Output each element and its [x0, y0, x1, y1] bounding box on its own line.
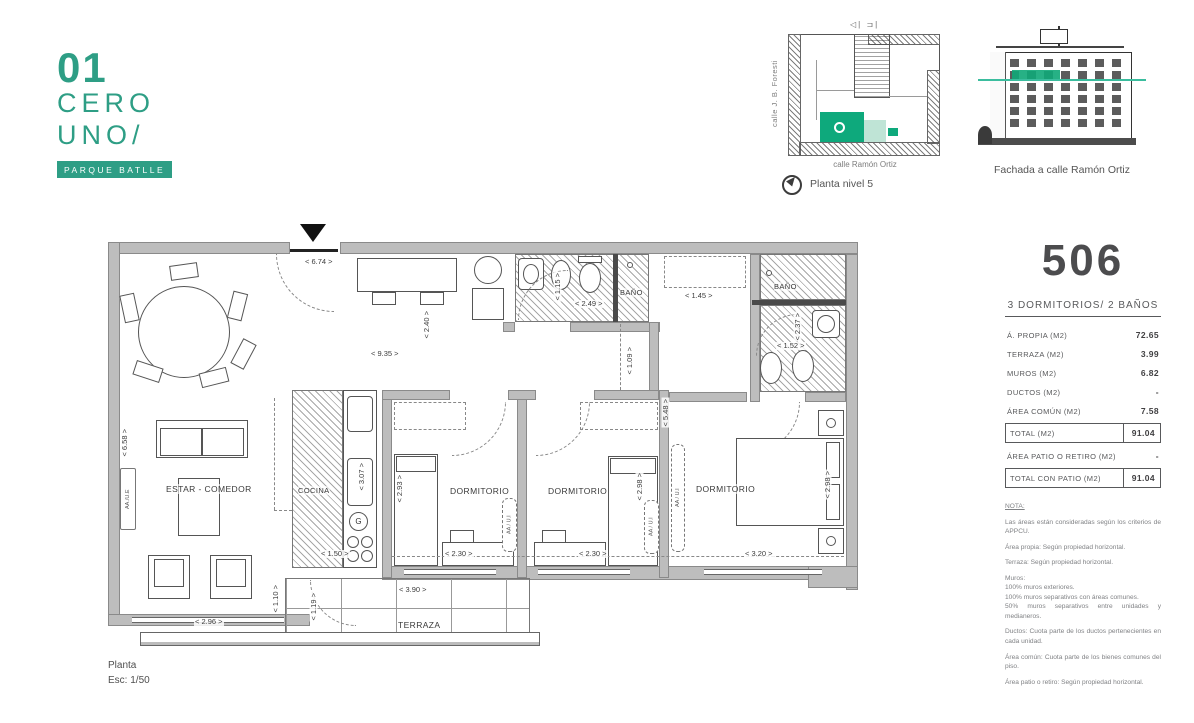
table-row: ÁREA COMÚN (M2)7.58: [1005, 401, 1161, 420]
bathroom-sink-basin: [817, 315, 835, 333]
site-unit-bit: [888, 128, 898, 136]
section-marker-icons: ◁| ⊐|: [850, 20, 879, 29]
facade-rooftop-box: [1040, 29, 1068, 44]
table-row: DUCTOS (M2)-: [1005, 382, 1161, 401]
floor-plan: G AA./U.E AA / U.I AA / U.I AA: [108, 228, 858, 652]
closet: [580, 402, 658, 430]
table-row: MUROS (M2)6.82: [1005, 363, 1161, 382]
note-paragraph: Área propia: Según propiedad horizontal.: [1005, 543, 1161, 553]
window: [704, 569, 822, 575]
ac-interior-unit: AA / U.I: [502, 498, 517, 552]
wall-segment: [669, 392, 747, 402]
room-label-living: ESTAR - COMEDOR: [166, 484, 252, 494]
dimension: < 5.48 >: [662, 398, 670, 428]
dining-chair: [119, 293, 139, 324]
brand-logo: 01 CERO UNO/ PARQUE BATLLE: [57, 48, 172, 178]
brand-tagline: PARQUE BATLLE: [57, 161, 172, 178]
facade-tree: [978, 126, 992, 144]
toilet: [760, 352, 782, 384]
wall-segment: [846, 254, 858, 590]
room-label-bath: BAÑO: [620, 288, 643, 297]
north-compass-icon: [782, 175, 802, 195]
site-plan-caption: Planta nivel 5: [810, 178, 873, 190]
brand-word-cero: CERO: [57, 88, 172, 120]
row-label: MUROS (M2): [1007, 369, 1056, 378]
row-label: ÁREA PATIO O RETIRO (M2): [1007, 452, 1116, 461]
site-hatch-left: [788, 34, 801, 156]
table-row: TERRAZA (M2)3.99: [1005, 344, 1161, 363]
dimension: < 2.40 >: [423, 310, 431, 340]
bedroom1-door-swing: [452, 402, 506, 456]
facade-window-row: [1010, 95, 1126, 103]
ac-interior-unit: AA / U.I: [671, 444, 685, 552]
areas-table: Á. PROPIA (M2)72.65 TERRAZA (M2)3.99 MUR…: [1005, 325, 1161, 488]
projection-line: [274, 398, 275, 510]
unit-subtitle: 3 DORMITORIOS/ 2 BAÑOS: [1005, 300, 1161, 317]
row-value: 7.58: [1141, 406, 1159, 416]
window: [538, 569, 630, 575]
plan-scale: Esc: 1/50: [108, 673, 150, 688]
wall-segment: [508, 390, 536, 400]
dimension: < 2.37 >: [794, 312, 802, 342]
unit-info-panel: 506 3 DORMITORIOS/ 2 BAÑOS Á. PROPIA (M2…: [1005, 236, 1161, 693]
facade-caption: Fachada a calle Ramón Ortiz: [978, 164, 1146, 176]
dimension: < 1.15 >: [554, 272, 562, 302]
site-hatch-bottom: [799, 142, 940, 156]
table-row-total-patio: TOTAL CON PATIO (M2)91.04: [1005, 468, 1161, 488]
note-paragraph: Área patio o retiro: Según propiedad hor…: [1005, 678, 1161, 688]
facade-window-row: [1010, 59, 1126, 67]
wall-segment: [517, 390, 527, 578]
wall-segment: [649, 322, 659, 400]
dimension: < 3.07 >: [358, 462, 366, 492]
unit-number: 506: [1005, 236, 1161, 286]
room-label-bath: BAÑO: [774, 282, 797, 291]
note-paragraph: Terraza: Según propiedad horizontal.: [1005, 558, 1161, 568]
entry-door-leaf: [290, 249, 338, 252]
armchair-cushion: [216, 559, 246, 587]
wall-segment: [108, 242, 120, 626]
lamp: [826, 536, 836, 546]
toilet-tank: [578, 256, 602, 263]
room-label-bedroom: DORMITORIO: [548, 486, 607, 496]
row-value: 91.04: [1123, 469, 1160, 487]
pillow: [610, 458, 656, 474]
stool: [372, 292, 396, 305]
wall-segment: [382, 390, 450, 400]
plan-title: Planta: [108, 658, 150, 673]
pillow: [396, 456, 436, 472]
dimension: < 1.45 >: [684, 292, 714, 300]
facade-roofline: [996, 46, 1124, 48]
row-value: 91.04: [1123, 424, 1160, 442]
row-value: 3.99: [1141, 349, 1159, 359]
row-label: Á. PROPIA (M2): [1007, 331, 1067, 340]
stove-burner: [361, 550, 373, 562]
wall-segment: [108, 242, 290, 254]
site-wall-line: [888, 96, 927, 97]
note-paragraph: Área común: Cuota parte de los bienes co…: [1005, 653, 1161, 672]
dimension: < 1.10 >: [272, 584, 280, 614]
row-value: 6.82: [1141, 368, 1159, 378]
room-label-bedroom: DORMITORIO: [450, 486, 509, 496]
room-label-bedroom: DORMITORIO: [696, 484, 755, 494]
ac-exterior-unit: AA./U.E: [120, 468, 136, 530]
facade-left-pier: [990, 52, 1006, 138]
dimension: < 6.74 >: [304, 258, 334, 266]
row-value: 72.65: [1136, 330, 1159, 340]
wall-segment: [750, 254, 760, 402]
dimension: < 1.50 >: [320, 550, 350, 558]
facade-window-row: [1010, 107, 1126, 115]
brand-word-uno: UNO/: [57, 120, 172, 152]
wall-segment: [805, 392, 846, 402]
stove-burner: [361, 536, 373, 548]
site-elevator-core: [854, 34, 890, 98]
dimension: < 1.52 >: [776, 342, 806, 350]
dimension: < 2.30 >: [444, 550, 474, 558]
toilet: [579, 263, 601, 293]
brand-number: 01: [57, 48, 172, 88]
shower-head: [627, 262, 633, 268]
bathroom2-shower-hatch: [760, 254, 846, 300]
sofa-cushion: [160, 428, 202, 456]
row-label: TOTAL (M2): [1006, 425, 1059, 442]
facade-elevation: Fachada a calle Ramón Ortiz: [978, 26, 1146, 186]
kitchen-sink: [347, 396, 373, 432]
hall-closet: [664, 256, 746, 288]
dimension: < 6.58 >: [121, 428, 129, 458]
dining-chair: [169, 262, 199, 281]
note-paragraph: Ductos: Cuota parte de los ductos perten…: [1005, 627, 1161, 646]
armchair-cushion: [154, 559, 184, 587]
corridor-line: [620, 324, 621, 390]
desk-chair: [450, 530, 474, 543]
dimension: < 3.90 >: [398, 586, 428, 594]
site-hatch-right: [927, 70, 940, 144]
dimension: < 2.96 >: [194, 618, 224, 626]
gas-meter: G: [349, 512, 368, 531]
terrace-railing: [140, 632, 540, 646]
projection-line: [274, 510, 292, 511]
note-paragraph: Muros: 100% muros exteriores. 100% muros…: [1005, 574, 1161, 622]
dimension: < 1.19 >: [310, 592, 318, 622]
wall-segment: [594, 390, 659, 400]
dimension: < 2.93 >: [396, 474, 404, 504]
site-unit-marker-icon: [834, 122, 845, 133]
dimension: < 1.09 >: [626, 346, 634, 376]
shower-drain: [766, 270, 772, 276]
table-row: Á. PROPIA (M2)72.65: [1005, 325, 1161, 344]
stool: [420, 292, 444, 305]
dimension: < 2.30 >: [578, 550, 608, 558]
entry-arrow-icon: [300, 224, 326, 242]
stove-burner: [347, 536, 359, 548]
row-label: TERRAZA (M2): [1007, 350, 1064, 359]
facade-ground: [978, 138, 1136, 145]
wall-segment: [382, 390, 392, 578]
site-plan: ◁| ⊐| calle J. B. Foresti calle Ramón Or…: [770, 20, 975, 210]
bathroom2-divider: [752, 300, 846, 305]
note-paragraph: Las áreas están consideradas según los c…: [1005, 518, 1161, 537]
room-label-kitchen: COCINA: [298, 486, 330, 495]
desk-chair: [542, 530, 566, 543]
site-wall-line: [816, 90, 854, 91]
facade-level-line: [978, 79, 1146, 81]
lamp: [826, 418, 836, 428]
sofa-cushion: [202, 428, 244, 456]
row-label: DUCTOS (M2): [1007, 388, 1060, 397]
row-value: -: [1156, 387, 1159, 397]
kitchen-island: [357, 258, 457, 292]
wall-segment: [340, 242, 858, 254]
room-label-terrace: TERRAZA: [398, 620, 440, 630]
dimension: < 2.98 >: [824, 470, 832, 500]
street-label-bottom: calle Ramón Ortiz: [800, 160, 930, 169]
ac-interior-unit: AA / U.I: [644, 500, 659, 554]
notes-title: NOTA:: [1005, 502, 1161, 512]
kitchen-floor-hatch: [292, 390, 343, 568]
table-row-total: TOTAL (M2)91.04: [1005, 423, 1161, 443]
wall-segment: [503, 322, 515, 332]
bathroom1-divider: [613, 254, 618, 322]
row-label: ÁREA COMÚN (M2): [1007, 407, 1081, 416]
dimension: < 9.35 >: [370, 350, 400, 358]
washing-machine: [474, 256, 502, 284]
dimension: < 2.98 >: [636, 472, 644, 502]
facade-window-row: [1010, 119, 1126, 127]
row-label: TOTAL CON PATIO (M2): [1006, 470, 1105, 487]
notes-block: NOTA: Las áreas están consideradas según…: [1005, 502, 1161, 687]
dining-chair: [227, 291, 248, 322]
row-value: -: [1156, 451, 1159, 461]
dining-chair: [230, 338, 256, 370]
facade-window-row: [1010, 83, 1126, 91]
laundry-cabinet: [472, 288, 504, 320]
table-row: ÁREA PATIO O RETIRO (M2)-: [1005, 446, 1161, 465]
dimension: < 3.20 >: [744, 550, 774, 558]
dimension: < 2.49 >: [574, 300, 604, 308]
window: [404, 569, 496, 575]
site-unit-terrace: [864, 120, 886, 142]
wall-segment: [570, 322, 660, 332]
plan-caption: Planta Esc: 1/50: [108, 658, 150, 688]
street-label-left: calle J. B. Foresti: [770, 60, 779, 127]
bedroom2-door-swing: [536, 402, 590, 456]
